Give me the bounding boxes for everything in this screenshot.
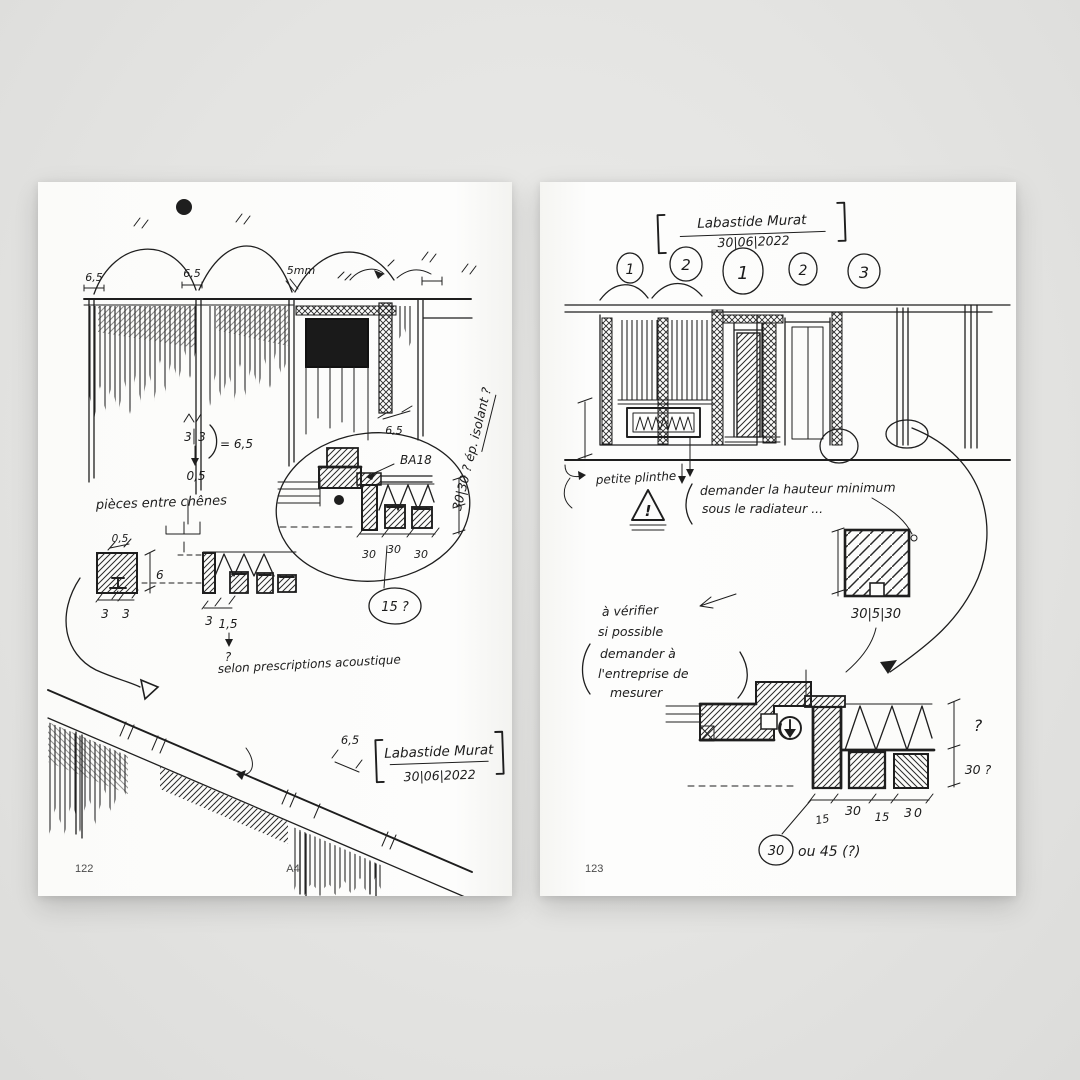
book-spread-photo: 6,5 6,5 5mm: [0, 0, 1080, 1080]
right-page-sketch: Labastide Murat 30|06|2022 1 2 1 2 3: [540, 182, 1016, 896]
circled-number: 2: [799, 263, 808, 279]
circled-numbers-row: 1 2 1 2 3: [600, 247, 880, 300]
top-elevation-sketch: 6,5 6,5 5mm: [84, 214, 476, 494]
dim-label: 6,5: [183, 267, 201, 280]
stamp-name: Labastide Murat: [384, 742, 494, 762]
notch: [761, 714, 777, 729]
door-lintel: [723, 315, 783, 323]
hatched-beam: [805, 696, 845, 707]
svg-text:si possible: si possible: [598, 624, 663, 639]
dim-label: 15: [875, 810, 890, 824]
hatched-bar: [203, 553, 215, 593]
hatched-block: [327, 448, 358, 467]
dim-label: 30: [904, 805, 924, 820]
project-stamp: Labastide Murat 30|06|2022: [657, 203, 845, 253]
circled-number: 3: [859, 263, 869, 282]
dim-label: 6,5: [341, 733, 359, 747]
dim-label: 3: [205, 614, 213, 628]
dim-label: 30: [414, 548, 428, 561]
question-top: ?: [974, 716, 983, 735]
format-label: A4: [286, 863, 299, 875]
ba18-label: BA18: [400, 453, 432, 467]
svg-text:l'entreprise de: l'entreprise de: [598, 666, 689, 681]
demander-note-line2: sous le radiateur ...: [702, 501, 823, 516]
verify-note: à vérifier si possible demander à l'entr…: [583, 594, 748, 700]
page-number-left: 122: [75, 863, 93, 875]
circled-number: 2: [681, 256, 691, 274]
circled-number: 1: [626, 262, 635, 278]
soffit-hatch: [160, 767, 288, 844]
hatched-block: [849, 752, 885, 788]
rotated-margin-note: 30|30 ? ép. isolant ?: [449, 385, 497, 512]
dim-label: 1,5: [218, 617, 237, 631]
registration-dot: [176, 199, 192, 215]
plinth-square-detail: 30|5|30: [832, 528, 909, 622]
calc-note: 3 3 = 6,5 0,5: [184, 414, 253, 483]
fraction-top: 3: [184, 430, 192, 444]
dim-label: 30: [845, 803, 861, 818]
question-right: 30 ?: [965, 762, 992, 777]
hatched-block: [412, 507, 432, 528]
hatched-band: [357, 473, 381, 485]
oval-blowup-detail: 30 30 30 BA18 15 ?: [269, 423, 477, 624]
dark-recess: [306, 319, 368, 367]
circled-suffix: ou 45 (?): [798, 844, 861, 860]
hatched-jamb: [763, 323, 776, 443]
square-dims-label: 30|5|30: [851, 607, 901, 622]
dim-label: 3: [122, 607, 130, 621]
left-page: 6,5 6,5 5mm: [38, 182, 512, 896]
dim-label: 6: [156, 568, 164, 582]
perspective-beam-sketch: 6,5: [48, 690, 472, 896]
equals-label: = 6,5: [220, 437, 253, 451]
project-stamp: Labastide Murat 30|06|2022: [375, 732, 504, 785]
hatched-block: [230, 572, 248, 593]
dim-label: 5mm: [287, 264, 315, 277]
page-number-right: 123: [585, 863, 603, 875]
slat-fringe: [396, 306, 414, 348]
stamp-name: Labastide Murat: [697, 212, 807, 232]
svg-text:demander à: demander à: [600, 646, 676, 661]
hatched-post: [832, 312, 842, 445]
svg-text:mesurer: mesurer: [610, 685, 663, 700]
module-section-detail: 0,5 6 3 3 3: [96, 522, 401, 676]
warning-mark: !: [645, 502, 652, 520]
circled-question-label: 15 ?: [381, 600, 409, 615]
slat-panel: [668, 320, 712, 400]
svg-text:à vérifier: à vérifier: [602, 602, 660, 619]
dim-label: 3: [101, 607, 109, 621]
dim-label: 6,5: [85, 271, 103, 284]
dim-label: 30: [362, 548, 376, 561]
hatched-post: [379, 303, 392, 413]
stamp-date: 30|06|2022: [717, 233, 790, 251]
svg-text:30: 30: [768, 844, 785, 859]
hatched-column: [362, 485, 377, 530]
svg-text:30|30 ? ép. isolant ?: 30|30 ? ép. isolant ?: [449, 385, 494, 512]
dim-label: 6,5: [385, 424, 403, 437]
elevation-annotations: petite plinthe ! demander la hauteur min…: [565, 464, 896, 530]
inspection-circle: [886, 420, 928, 448]
bottom-section-detail: 15 30 15 30 30 ou 45 (?) ? 30 ?: [666, 670, 992, 865]
hatched-block: [894, 754, 928, 788]
acoustic-note: selon prescriptions acoustique: [217, 652, 401, 676]
pieces-note: pièces entre chênes: [95, 493, 228, 513]
circled-number: 1: [737, 263, 748, 284]
hatched-block: [319, 467, 361, 488]
hatched-block: [385, 505, 405, 528]
hatched-door-leaf: [737, 333, 760, 437]
hatched-pilaster: [602, 318, 612, 444]
dim-label: 15: [814, 812, 830, 827]
hatched-block: [97, 553, 137, 593]
hatched-column: [813, 707, 841, 788]
notch: [870, 583, 884, 596]
fraction-bottom: 3: [198, 430, 206, 444]
arrow-curve-to-perspective: [66, 578, 158, 699]
hatched-pilaster: [712, 310, 723, 445]
hatched-block: [257, 573, 273, 593]
result-label: 0,5: [186, 469, 205, 483]
stamp-date: 30|06|2022: [403, 767, 476, 785]
dim-label: 30: [387, 543, 401, 556]
left-page-sketch: 6,5 6,5 5mm: [38, 182, 512, 896]
demander-note-line1: demander la hauteur minimum: [700, 480, 896, 498]
slat-panel: [618, 320, 658, 400]
fixing-dot: [334, 495, 344, 505]
right-page: Labastide Murat 30|06|2022 1 2 1 2 3: [540, 182, 1016, 896]
plinthe-note: petite plinthe: [594, 469, 676, 487]
